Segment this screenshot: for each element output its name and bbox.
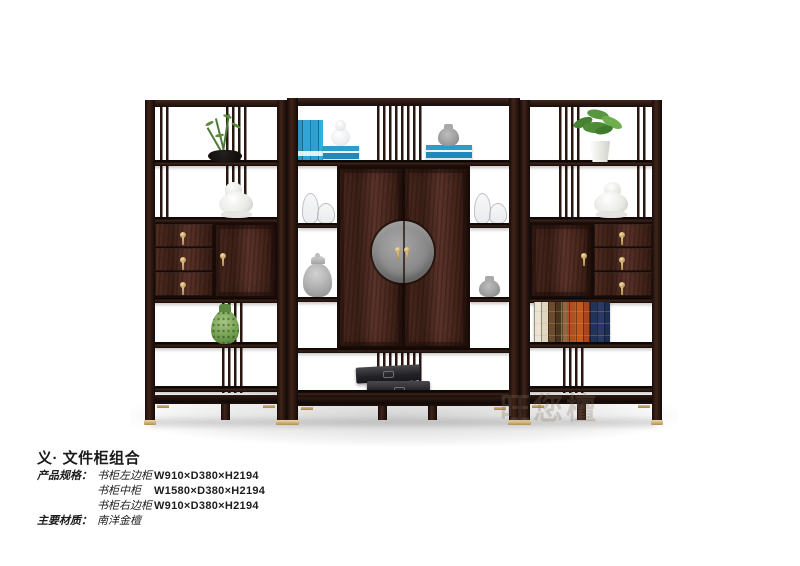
white-square-pot <box>589 141 611 162</box>
right-cabinet-unit <box>520 100 662 426</box>
apron <box>145 395 287 404</box>
spec-name: 书柜中柜 <box>97 483 154 498</box>
brass-accent <box>157 405 169 408</box>
door-knob <box>404 247 410 253</box>
small-gray-jar <box>479 280 500 297</box>
drawer-pull <box>619 257 625 263</box>
top-rail <box>520 100 662 107</box>
specs-label: 产品规格： <box>37 468 97 483</box>
brass-accent <box>263 405 275 408</box>
shelf <box>293 348 514 353</box>
blue-books-stack <box>323 146 359 160</box>
brand-watermark: 旺您檀 <box>500 384 599 428</box>
flank-shelf <box>298 297 338 302</box>
glass-jar <box>317 203 335 224</box>
potted-plant-decor <box>193 110 253 162</box>
blue-books-vertical <box>295 120 323 160</box>
potted-plant-decor <box>565 106 631 162</box>
middle-cabinet-unit <box>287 98 520 426</box>
flank-shelf <box>469 223 509 228</box>
drawer-pull <box>180 257 186 263</box>
glass-jar <box>474 193 491 224</box>
spec-row: 书柜右边柜 W910×D380×H2194 <box>37 498 265 513</box>
glass-jar <box>302 193 319 224</box>
lattice-slats <box>377 106 422 160</box>
glass-jar <box>489 203 507 224</box>
gray-jar <box>438 128 459 146</box>
flank-shelf <box>298 223 338 228</box>
blue-books-stack <box>426 145 472 160</box>
storage-block <box>155 223 277 298</box>
spec-size: W910×D380×H2194 <box>154 499 259 514</box>
central-cabinet <box>337 166 470 349</box>
drawer-pull <box>180 282 186 288</box>
shelf <box>525 342 657 348</box>
leg <box>221 404 230 420</box>
product-specs: 产品规格： 书柜左边柜 W910×D380×H2194 书柜中柜 W1580×D… <box>37 468 265 528</box>
spec-size: W1580×D380×H2194 <box>154 484 265 499</box>
cabinet-door <box>215 224 276 297</box>
drawer-pull <box>180 232 186 238</box>
brass-foot-cap <box>651 420 663 425</box>
leg <box>428 406 437 420</box>
spec-row: 书柜中柜 W1580×D380×H2194 <box>37 483 265 498</box>
top-rail <box>287 98 520 106</box>
shelf <box>150 386 282 392</box>
white-gourd-vase <box>331 128 350 146</box>
drawer-pull <box>619 232 625 238</box>
brass-foot-cap <box>286 420 299 425</box>
material-row: 主要材质： 南洋金檀 <box>37 513 265 528</box>
material-label: 主要材质： <box>37 513 97 528</box>
corner-post <box>520 100 530 420</box>
material-value: 南洋金檀 <box>97 513 141 528</box>
gray-ginger-jar <box>303 263 332 297</box>
door-pull <box>220 253 226 259</box>
leg <box>378 406 387 420</box>
black-bowl-pot <box>208 150 242 162</box>
brass-accent <box>301 407 313 410</box>
drawer-pull <box>619 282 625 288</box>
leather-books-row <box>534 302 610 342</box>
flank-shelf <box>469 297 509 302</box>
door-knob <box>395 247 401 253</box>
corner-post <box>652 100 662 420</box>
apron <box>287 397 520 406</box>
top-rail <box>145 100 287 107</box>
door-seam <box>403 168 405 347</box>
corner-post <box>145 100 155 420</box>
lion-statue <box>218 182 255 218</box>
green-porcelain-jar <box>211 310 239 344</box>
storage-block <box>530 223 652 298</box>
corner-post <box>287 98 298 420</box>
brass-foot-cap <box>144 420 156 425</box>
left-cabinet-unit <box>145 100 287 426</box>
shelf <box>150 342 282 348</box>
brass-accent <box>638 405 650 408</box>
lion-statue <box>592 182 629 218</box>
spec-name: 书柜右边柜 <box>97 498 154 513</box>
shelf <box>293 390 514 397</box>
corner-post <box>277 100 287 420</box>
corner-post <box>509 98 520 420</box>
spec-name: 书柜左边柜 <box>97 468 154 483</box>
spec-size: W910×D380×H2194 <box>154 469 259 484</box>
spec-row: 产品规格： 书柜左边柜 W910×D380×H2194 <box>37 468 265 483</box>
page-title: 义· 文件柜组合 <box>37 447 140 468</box>
door-pull <box>581 253 587 259</box>
